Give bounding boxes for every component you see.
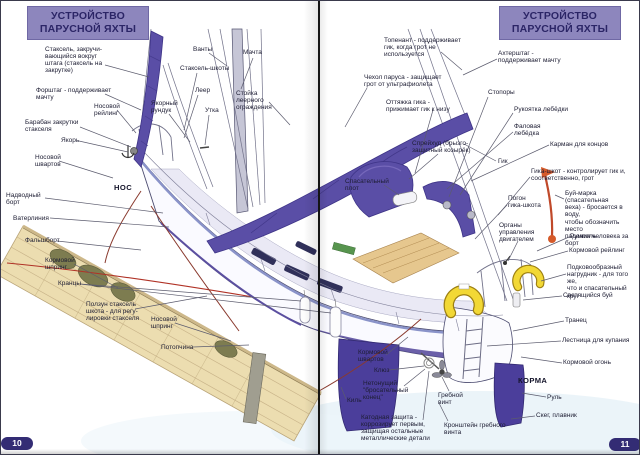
part-label: Потопчина <box>161 344 193 351</box>
part-label: Кормовой шпринг <box>45 257 75 271</box>
page-title-left: УСТРОЙСТВО ПАРУСНОЙ ЯХТЫ <box>27 6 149 40</box>
gutter-shadow <box>320 1 328 455</box>
part-label: Транец <box>565 317 587 324</box>
part-label: Фальшборт <box>25 237 60 244</box>
part-label: Форштаг - поддерживает мачту <box>36 87 111 101</box>
part-label: Носовой рейлинг <box>94 103 120 117</box>
part-label: Якорь <box>61 137 79 144</box>
section-label: НОС <box>114 184 132 192</box>
gutter-shadow <box>304 1 318 455</box>
part-label: Гика-шкот - контролирует гик и, соответс… <box>531 168 626 182</box>
part-label: Ванты <box>193 46 212 53</box>
part-label: Ватерлиния <box>13 215 49 222</box>
cleat <box>200 147 209 148</box>
part-label: Лестница для купания <box>562 337 629 344</box>
part-label: Киль <box>347 397 362 404</box>
part-label: Нетонущий "бросательный конец" <box>363 380 408 401</box>
part-label: Носовой шпринг <box>151 316 177 330</box>
part-label: Топенант - поддерживает гик, когда грот … <box>384 37 461 58</box>
part-label: Кормовой огонь <box>563 359 611 366</box>
winch <box>443 201 451 209</box>
part-label: Утка <box>205 107 219 114</box>
section-label: КОРМА <box>518 377 547 385</box>
part-label: Ахтерштаг - поддерживает мачту <box>498 50 561 64</box>
part-label: Мачта <box>243 49 262 56</box>
part-label: Стойка леерного ограждения <box>236 90 272 111</box>
page-edge-shadow <box>1 449 640 454</box>
part-label: Леер <box>195 87 210 94</box>
part-label: Ползун стаксель шкота - для регу- лировк… <box>86 301 139 322</box>
part-label: Кормовой швартов <box>358 349 388 363</box>
book-spread: Стаксель, закручи- вающийся вокруг штага… <box>0 0 640 455</box>
part-label: Клюз <box>374 367 389 374</box>
part-label: Кронштейн гребного винта <box>444 422 506 436</box>
part-label: Барабан закрутки стакселя <box>25 119 78 133</box>
mast <box>232 29 248 213</box>
part-label: Стаксель-шкоты <box>180 65 229 72</box>
horseshoe-buoy <box>516 269 540 287</box>
part-label: Рукоятка лебёдки <box>514 106 568 113</box>
part-label: Катодная защита - коррозирует первым, за… <box>361 414 430 443</box>
part-label: Карман для концов <box>550 141 608 148</box>
page-title-right: УСТРОЙСТВО ПАРУСНОЙ ЯХТЫ <box>499 6 621 40</box>
book-spine <box>318 1 320 455</box>
part-label: Скег, плавник <box>536 412 577 419</box>
part-label: Гик <box>498 158 508 165</box>
part-label: Гребной винт <box>438 392 463 406</box>
light-buoy <box>513 293 520 307</box>
part-label: Кранцы <box>58 280 81 287</box>
part-label: Спрейхуд (брызго- защитный козырёк) <box>412 140 471 154</box>
part-label: Фаловая лебёдка <box>514 123 541 137</box>
rudder <box>494 363 524 427</box>
part-label: Органы управления двигателем <box>499 222 534 243</box>
part-label: Оттяжка гика - прижимает гик к низу <box>386 99 450 113</box>
part-label: Румпель <box>570 233 596 240</box>
part-label: Стопоры <box>488 89 515 96</box>
part-label: Якорный рундук <box>151 100 178 114</box>
part-label: Чехол паруса - защищает грот от ультрафи… <box>364 74 441 88</box>
part-label: Погон гика-шкота <box>508 195 541 209</box>
part-label: Спасательный плот <box>345 178 389 192</box>
part-label: Руль <box>547 394 562 401</box>
stern-arch <box>423 181 475 237</box>
part-label: Кормовой рейлинг <box>569 247 625 254</box>
part-label: Светящийся буй <box>563 292 613 299</box>
winch <box>467 211 475 219</box>
part-label: Носовой швартов <box>35 154 61 168</box>
part-label: Стаксель, закручи- вающийся вокруг штага… <box>45 46 102 75</box>
part-label: Надводный борт <box>6 192 41 206</box>
